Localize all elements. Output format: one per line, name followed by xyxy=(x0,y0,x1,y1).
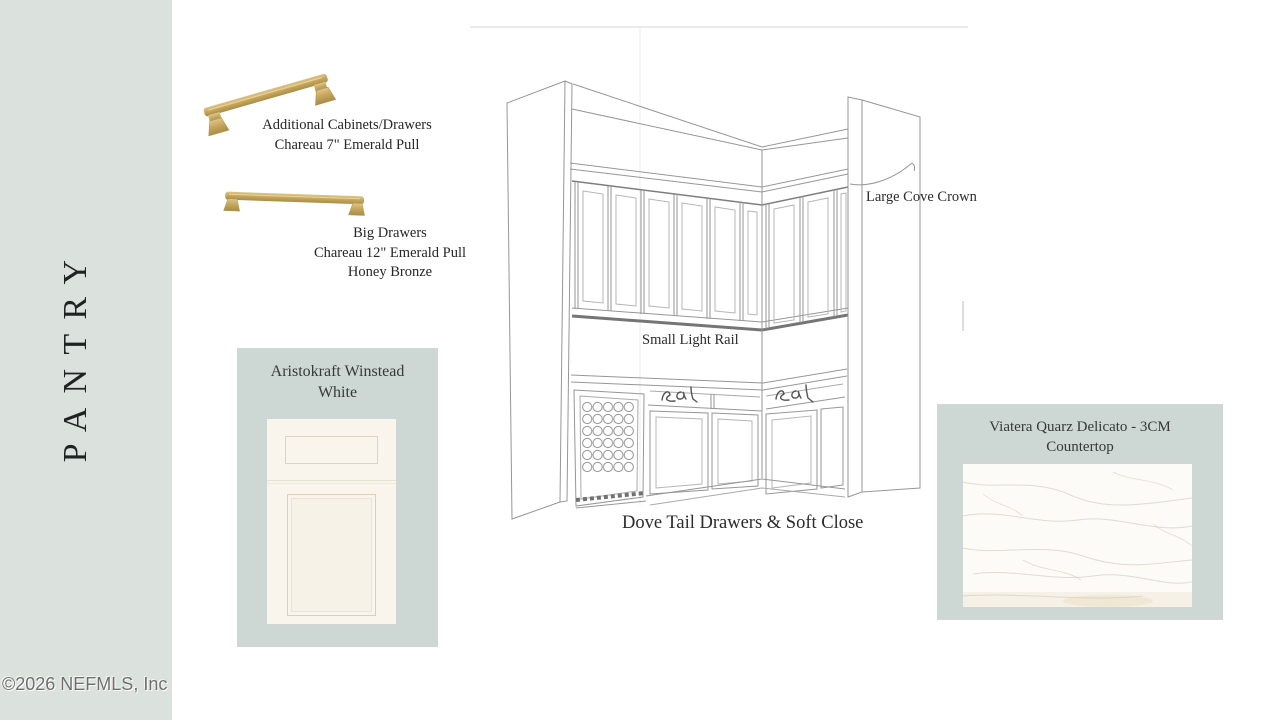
pull-big-caption: Big Drawers Chareau 12" Emerald Pull Hon… xyxy=(290,224,490,283)
cabinet-title-line2: White xyxy=(237,382,438,403)
cabinet-door-sample-image xyxy=(267,419,396,624)
cabinet-spec-panel: Aristokraft Winstead White xyxy=(237,348,438,647)
cabinet-panel-title: Aristokraft Winstead White xyxy=(237,348,438,403)
page-title: PANTRY xyxy=(57,134,99,574)
sample-drawer-front xyxy=(285,436,378,464)
sample-door-front xyxy=(287,494,376,616)
pull-big-image xyxy=(220,188,370,222)
label-small-light-rail: Small Light Rail xyxy=(642,332,739,349)
pull-small-caption: Additional Cabinets/Drawers Chareau 7" E… xyxy=(247,116,447,155)
pull-big-caption-line1: Big Drawers xyxy=(290,224,490,244)
countertop-panel-title: Viatera Quarz Delicato - 3CM Countertop xyxy=(937,404,1223,457)
countertop-spec-panel: Viatera Quarz Delicato - 3CM Countertop xyxy=(937,404,1223,620)
label-dove-tail-drawers: Dove Tail Drawers & Soft Close xyxy=(622,513,863,534)
cabinet-sketch-drawing xyxy=(470,0,990,560)
countertop-title-line2: Countertop xyxy=(937,437,1223,457)
pull-small-caption-line2: Chareau 7" Emerald Pull xyxy=(247,136,447,156)
pull-big-caption-line3: Honey Bronze xyxy=(290,263,490,283)
cabinet-title-line1: Aristokraft Winstead xyxy=(237,361,438,382)
label-large-cove-crown: Large Cove Crown xyxy=(866,189,977,206)
pull-small-caption-line1: Additional Cabinets/Drawers xyxy=(247,116,447,136)
copyright-watermark: ©2026 NEFMLS, Inc xyxy=(2,674,167,695)
countertop-title-line1: Viatera Quarz Delicato - 3CM xyxy=(937,417,1223,437)
brass-pull-shape xyxy=(224,192,366,216)
pantry-design-board: PANTRY Additional Cabinets/Drawers Chare… xyxy=(0,0,1280,720)
pull-big-caption-line2: Chareau 12" Emerald Pull xyxy=(290,244,490,264)
quartz-slab-image xyxy=(963,464,1192,607)
